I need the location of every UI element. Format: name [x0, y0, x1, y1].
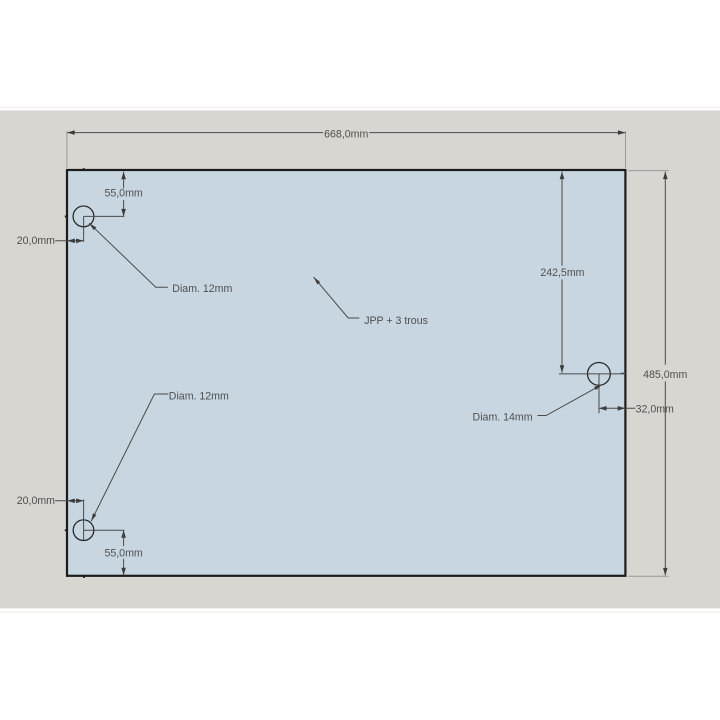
- svg-text:55,0mm: 55,0mm: [104, 548, 142, 560]
- svg-text:55,0mm: 55,0mm: [104, 188, 142, 200]
- svg-text:32,0mm: 32,0mm: [636, 404, 674, 416]
- svg-text:242,5mm: 242,5mm: [540, 267, 584, 279]
- svg-text:Diam. 12mm: Diam. 12mm: [172, 283, 232, 295]
- svg-text:20,0mm: 20,0mm: [17, 235, 55, 247]
- svg-text:485,0mm: 485,0mm: [643, 369, 687, 381]
- svg-text:668,0mm: 668,0mm: [324, 128, 368, 140]
- svg-text:Diam. 14mm: Diam. 14mm: [473, 412, 533, 424]
- svg-text:Diam. 12mm: Diam. 12mm: [169, 390, 229, 402]
- svg-text:20,0mm: 20,0mm: [17, 495, 55, 507]
- svg-text:JPP + 3 trous: JPP + 3 trous: [364, 315, 428, 327]
